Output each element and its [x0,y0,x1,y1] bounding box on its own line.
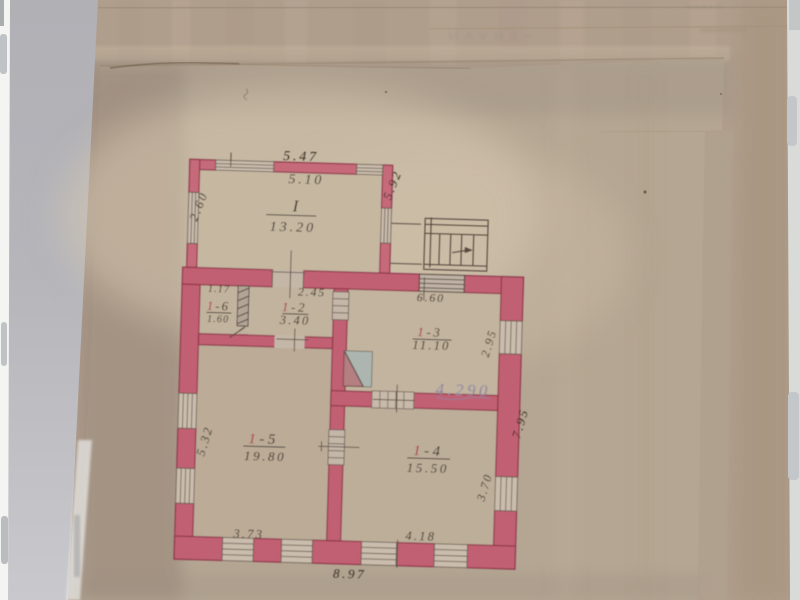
svg-text:5.47: 5.47 [283,149,319,165]
svg-text:6.60: 6.60 [417,290,446,305]
svg-text:15.50: 15.50 [406,460,449,476]
svg-text:~~~~~: ~~~~~ [686,2,723,14]
svg-text:3.40: 3.40 [279,313,311,328]
svg-text:13.20: 13.20 [269,220,316,236]
svg-text:1-4: 1-4 [413,443,444,460]
svg-text:1-6: 1-6 [207,299,231,314]
svg-text:MAVHS~: MAVHS~ [448,29,539,43]
svg-text:1.17: 1.17 [208,284,231,296]
svg-text:2.45: 2.45 [298,285,327,300]
svg-text:4.18: 4.18 [405,529,436,544]
svg-text:11.10: 11.10 [412,338,451,353]
svg-text:1.60: 1.60 [207,314,230,326]
svg-text:19.80: 19.80 [244,448,287,464]
svg-text:3.73: 3.73 [232,527,264,542]
svg-text:5.10: 5.10 [288,172,324,188]
svg-text:1-5: 1-5 [248,431,279,448]
svg-text:8.97: 8.97 [333,566,367,582]
